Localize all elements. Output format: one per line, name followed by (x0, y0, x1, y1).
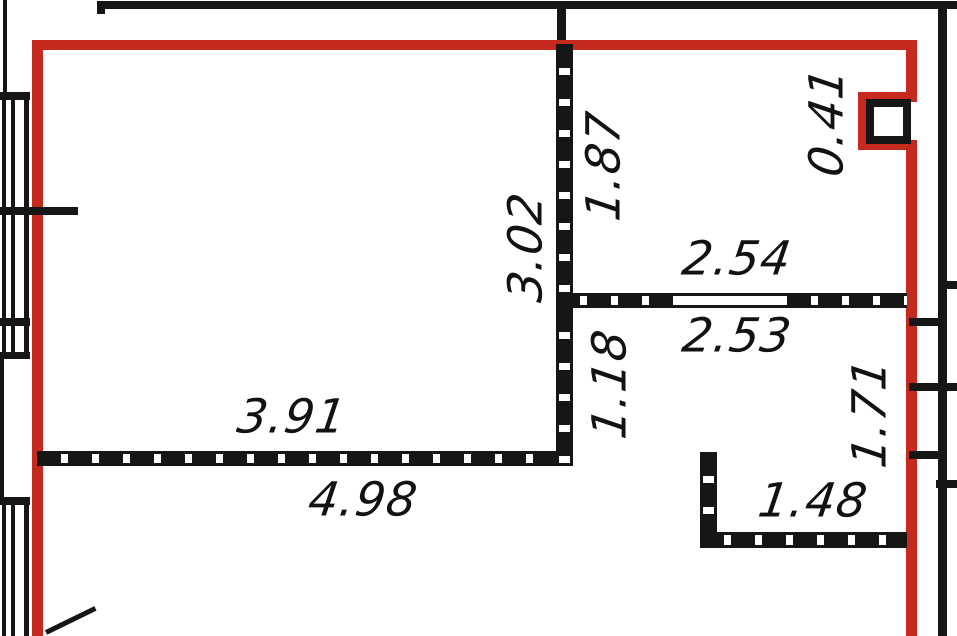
window-pane-line (24, 497, 29, 636)
outline-wall-right-lower (906, 150, 917, 636)
window-cap-mid (0, 318, 30, 326)
neighbor-tick (909, 383, 957, 391)
dimension-label-1-87: 1.87 (581, 108, 628, 223)
exterior-face-line-top-left (3, 0, 7, 92)
outline-wall-right-upper (906, 40, 917, 92)
dimension-label-3-91: 3.91 (234, 394, 349, 441)
partition-vertical-lower (556, 308, 573, 466)
outline-wall-left (32, 40, 43, 636)
neighbor-tick (909, 318, 947, 326)
partition-opening (680, 293, 787, 308)
neighbor-tick (941, 281, 957, 289)
window-mid-tick (0, 207, 78, 215)
dimension-label-2-54: 2.54 (679, 236, 794, 283)
dimension-label-3-02: 3.02 (503, 189, 550, 304)
partition-bath-horizontal (700, 532, 907, 548)
dimension-label-1-71: 1.71 (847, 355, 894, 470)
door-leaf-symbol (45, 606, 97, 635)
dimension-label-1-18: 1.18 (587, 326, 634, 441)
dimension-label-0-41: 0.41 (804, 64, 851, 179)
window-pane-line (11, 497, 15, 636)
dimension-label-1-48: 1.48 (755, 478, 870, 525)
partition-vertical-upper (556, 44, 573, 294)
outline-wall-top (33, 40, 917, 50)
floor-plan-canvas: 1.87 3.02 2.54 2.53 1.18 3.91 4.98 0.41 … (0, 0, 957, 636)
partition-horizontal-left-segment (556, 293, 680, 308)
partition-horizontal-right-segment (787, 293, 907, 308)
neighbor-tick (909, 451, 947, 459)
partition-stub-above-outline (557, 5, 566, 45)
window-cap-bottom (0, 352, 30, 359)
neighbor-tick (936, 480, 957, 488)
neighbor-wall-top (97, 1, 957, 9)
exterior-face-line-mid-left (0, 359, 4, 497)
window-pane-line (2, 497, 6, 636)
neighbor-wall-top-end-stub (97, 1, 105, 14)
ventilation-shaft-symbol (866, 99, 911, 144)
dimension-label-2-53: 2.53 (679, 313, 794, 360)
partition-hall-wall (37, 451, 557, 466)
dimension-label-4-98: 4.98 (305, 477, 420, 524)
